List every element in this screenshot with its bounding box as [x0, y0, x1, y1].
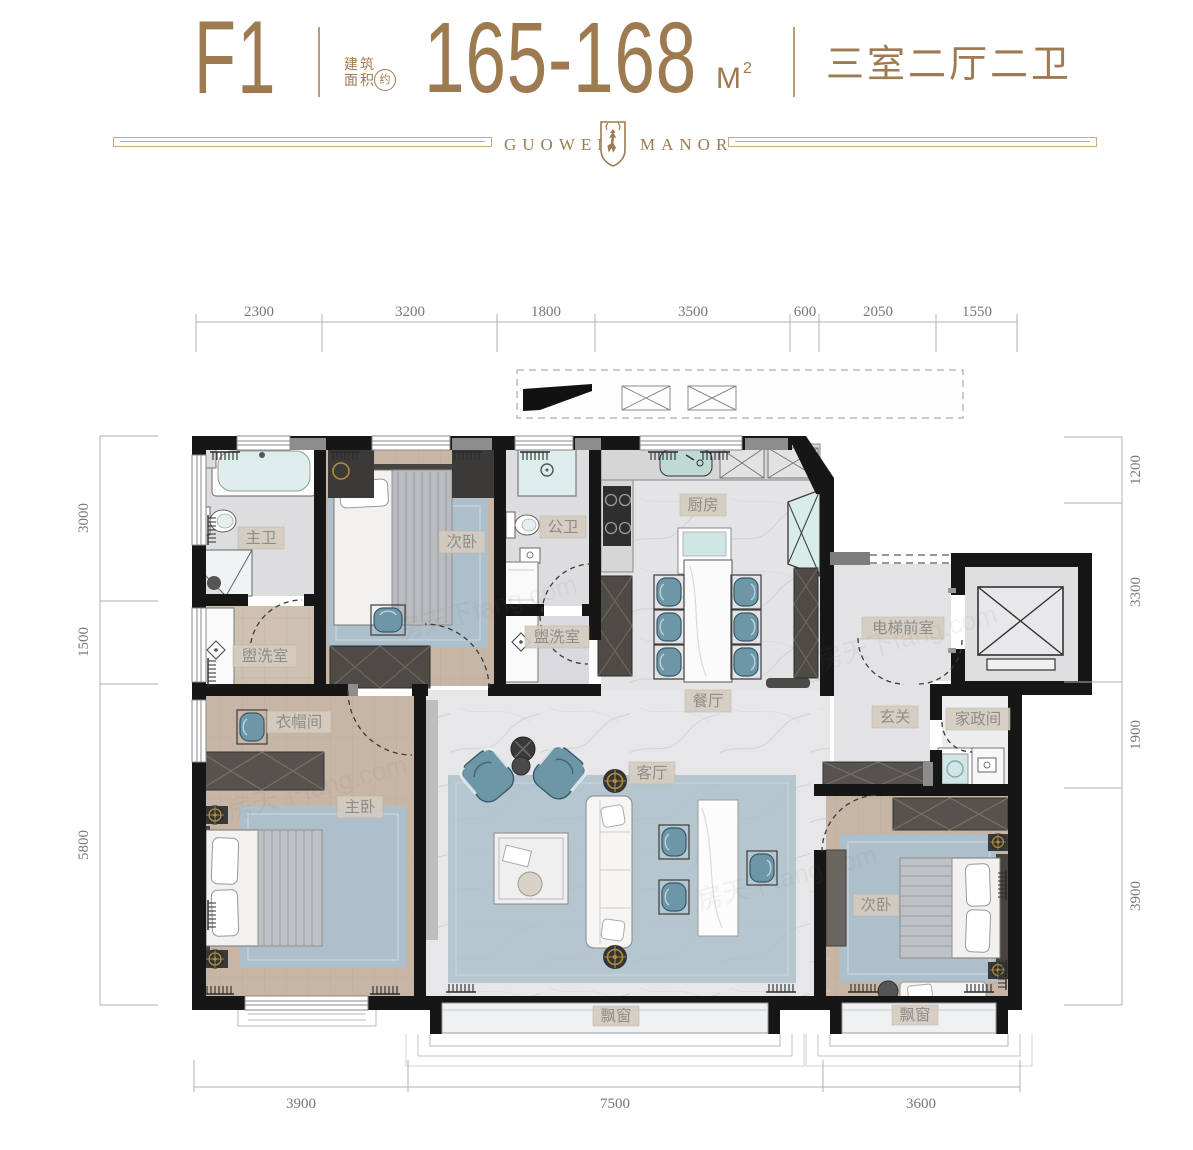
- elevator-wall-top: [951, 553, 1091, 567]
- dining-bench: [766, 678, 810, 688]
- wall-publicbath-b: [582, 604, 590, 616]
- wall-foyer-hk-a: [930, 696, 942, 720]
- wall-bedroom3-top: [820, 784, 930, 796]
- room-label-master-bedroom: 主卧: [337, 796, 383, 818]
- floor-plan-drawing: 2300 3200 1800 3500 600 2050 1550 3000 1…: [0, 0, 1193, 1150]
- housekeeping-sink: [972, 748, 1004, 790]
- dim-right-1: 1200: [1128, 455, 1144, 485]
- header-divider-2: [793, 27, 795, 97]
- svg-text:次卧: 次卧: [860, 896, 891, 914]
- bay-stub-2: [768, 996, 780, 1034]
- hall-dashed-boundary: [870, 555, 951, 563]
- wall-right: [1008, 684, 1022, 1010]
- wall-spine-a: [192, 684, 348, 696]
- area-unit: M2: [716, 62, 750, 96]
- window-top-1: [237, 436, 290, 450]
- kitchen-tall-cabinet: [598, 576, 632, 676]
- svg-text:飘窗: 飘窗: [600, 1007, 631, 1025]
- dim-top-7: 1550: [962, 304, 992, 320]
- svg-text:次卧: 次卧: [446, 533, 477, 551]
- wall-bedroom2-bath: [494, 436, 506, 684]
- dim-bottom-2: 7500: [600, 1096, 630, 1112]
- dim-top-4: 3500: [678, 304, 708, 320]
- washing-machine: [938, 748, 972, 790]
- dim-top-5: 600: [794, 304, 817, 320]
- room-label-dining: 餐厅: [685, 690, 731, 712]
- header-divider-1: [318, 27, 320, 97]
- area-prefix-line2: 面积: [344, 72, 376, 88]
- svg-text:家政间: 家政间: [955, 710, 1002, 728]
- svg-text:餐厅: 餐厅: [692, 692, 723, 710]
- window-kitchen: [640, 436, 742, 450]
- room-label-kitchen: 厨房: [680, 494, 726, 516]
- area-unit-letter: M: [716, 62, 741, 95]
- dim-top-1: 2300: [244, 304, 274, 320]
- bay-stub-1: [430, 996, 442, 1034]
- console-table: [698, 800, 738, 936]
- window-left-2: [192, 608, 206, 682]
- dining-table: [684, 560, 732, 682]
- wall-hk-bottom: [930, 784, 1012, 796]
- wall-hall-top-gray: [830, 552, 870, 565]
- logo-rule-left: [113, 137, 492, 147]
- sofa: [586, 796, 632, 948]
- shower-corner: [204, 550, 252, 596]
- dim-left-3: 5800: [76, 830, 92, 860]
- window-left-3: [192, 700, 206, 762]
- bedroom-3-nightstand-top: [988, 833, 1008, 851]
- area-prefix: 建筑 面积: [344, 56, 376, 88]
- floor-lamp-top: [603, 769, 627, 793]
- wall-master-living: [414, 696, 426, 996]
- room-label-living: 客厅: [629, 762, 675, 784]
- flue-window: [788, 490, 820, 576]
- wall-spine-b: [412, 684, 428, 696]
- unit-code: F1: [194, 6, 277, 110]
- dim-top-3: 1800: [531, 304, 561, 320]
- dim-top-2: 3200: [395, 304, 425, 320]
- equipment-platform: [517, 370, 963, 418]
- area-prefix-line1: 建筑: [344, 56, 376, 72]
- wall-spine-c: [488, 684, 601, 696]
- logo-rule-right: [728, 137, 1097, 147]
- area-approx-badge: 约: [374, 69, 396, 91]
- svg-text:公卫: 公卫: [547, 519, 578, 536]
- floor-lamp-bottom: [603, 945, 627, 969]
- coffee-table: [494, 833, 568, 904]
- elevator-wall-right: [1078, 553, 1092, 695]
- wall-bedroom3-stub: [814, 784, 826, 796]
- window-top-2: [372, 436, 450, 450]
- dim-top-6: 2050: [863, 304, 893, 320]
- shoe-cabinet: [823, 762, 933, 786]
- wall-kitchen-west: [589, 436, 601, 640]
- room-label-public-bath: 公卫: [540, 516, 586, 538]
- room-label-foyer: 玄关: [872, 706, 918, 728]
- svg-text:衣帽间: 衣帽间: [276, 713, 323, 731]
- bedroom-2-dresser: [330, 646, 430, 688]
- dim-right-2: 3300: [1128, 577, 1144, 607]
- sink-public: [520, 548, 540, 563]
- dim-right-3: 1900: [1128, 720, 1144, 750]
- bay-stub-3: [830, 996, 842, 1034]
- dim-bottom-1: 3900: [286, 1096, 316, 1112]
- bedroom-3-wardrobe: [893, 798, 1008, 830]
- svg-text:客厅: 客厅: [636, 764, 667, 782]
- svg-text:主卫: 主卫: [245, 529, 276, 547]
- room-label-housekeeping: 家政间: [946, 708, 1010, 730]
- window-master-bottom: [238, 996, 376, 1026]
- dim-left-1: 3000: [76, 503, 92, 533]
- area-value: 165-168: [424, 8, 697, 108]
- dim-bottom-3: 3600: [906, 1096, 936, 1112]
- svg-text:厨房: 厨房: [687, 496, 718, 514]
- svg-text:飘窗: 飘窗: [899, 1006, 930, 1024]
- window-left-1: [192, 455, 206, 545]
- room-label-bedroom-2: 次卧: [439, 531, 485, 553]
- area-unit-exponent: 2: [743, 60, 752, 77]
- window-top-3: [515, 436, 573, 450]
- bedroom-3-bed: [900, 854, 1008, 962]
- svg-text:玄关: 玄关: [879, 708, 910, 726]
- wall-masterbath-b: [304, 594, 326, 606]
- room-label-washroom-right: 盥洗室: [525, 626, 589, 648]
- svg-text:盥洗室: 盥洗室: [534, 628, 581, 646]
- wall-masterbath-a: [192, 594, 248, 606]
- room-label-bay-left: 飘窗: [593, 1006, 639, 1026]
- bay-stub-4: [996, 996, 1008, 1034]
- wall-housekeeping-top: [930, 684, 1012, 696]
- brand-name-right: MANOR: [640, 135, 733, 155]
- room-label-bedroom-3: 次卧: [853, 894, 899, 916]
- bathtub: [212, 446, 316, 496]
- room-label-master-bath: 主卫: [238, 527, 284, 549]
- svg-text:主卧: 主卧: [344, 798, 375, 816]
- master-bed: [198, 826, 322, 950]
- bedroom-3-nightstand-bottom: [988, 961, 1008, 979]
- dim-left-2: 1500: [76, 627, 92, 657]
- pantry-cabinet: [794, 568, 818, 678]
- svg-text:盥洗室: 盥洗室: [242, 647, 289, 665]
- tv-wall-panel: [426, 700, 438, 940]
- stove: [601, 480, 633, 572]
- room-label-cloakroom: 衣帽间: [267, 711, 331, 733]
- layout-summary: 三室二厅二卫: [826, 33, 1072, 88]
- wall-bath-bedroom2: [314, 436, 326, 684]
- room-label-bay-right: 飘窗: [892, 1005, 938, 1025]
- floor-plan-page: 2300 3200 1800 3500 600 2050 1550 3000 1…: [0, 0, 1193, 1150]
- room-label-washroom-left: 盥洗室: [233, 645, 297, 667]
- dim-right-4: 3900: [1128, 881, 1144, 911]
